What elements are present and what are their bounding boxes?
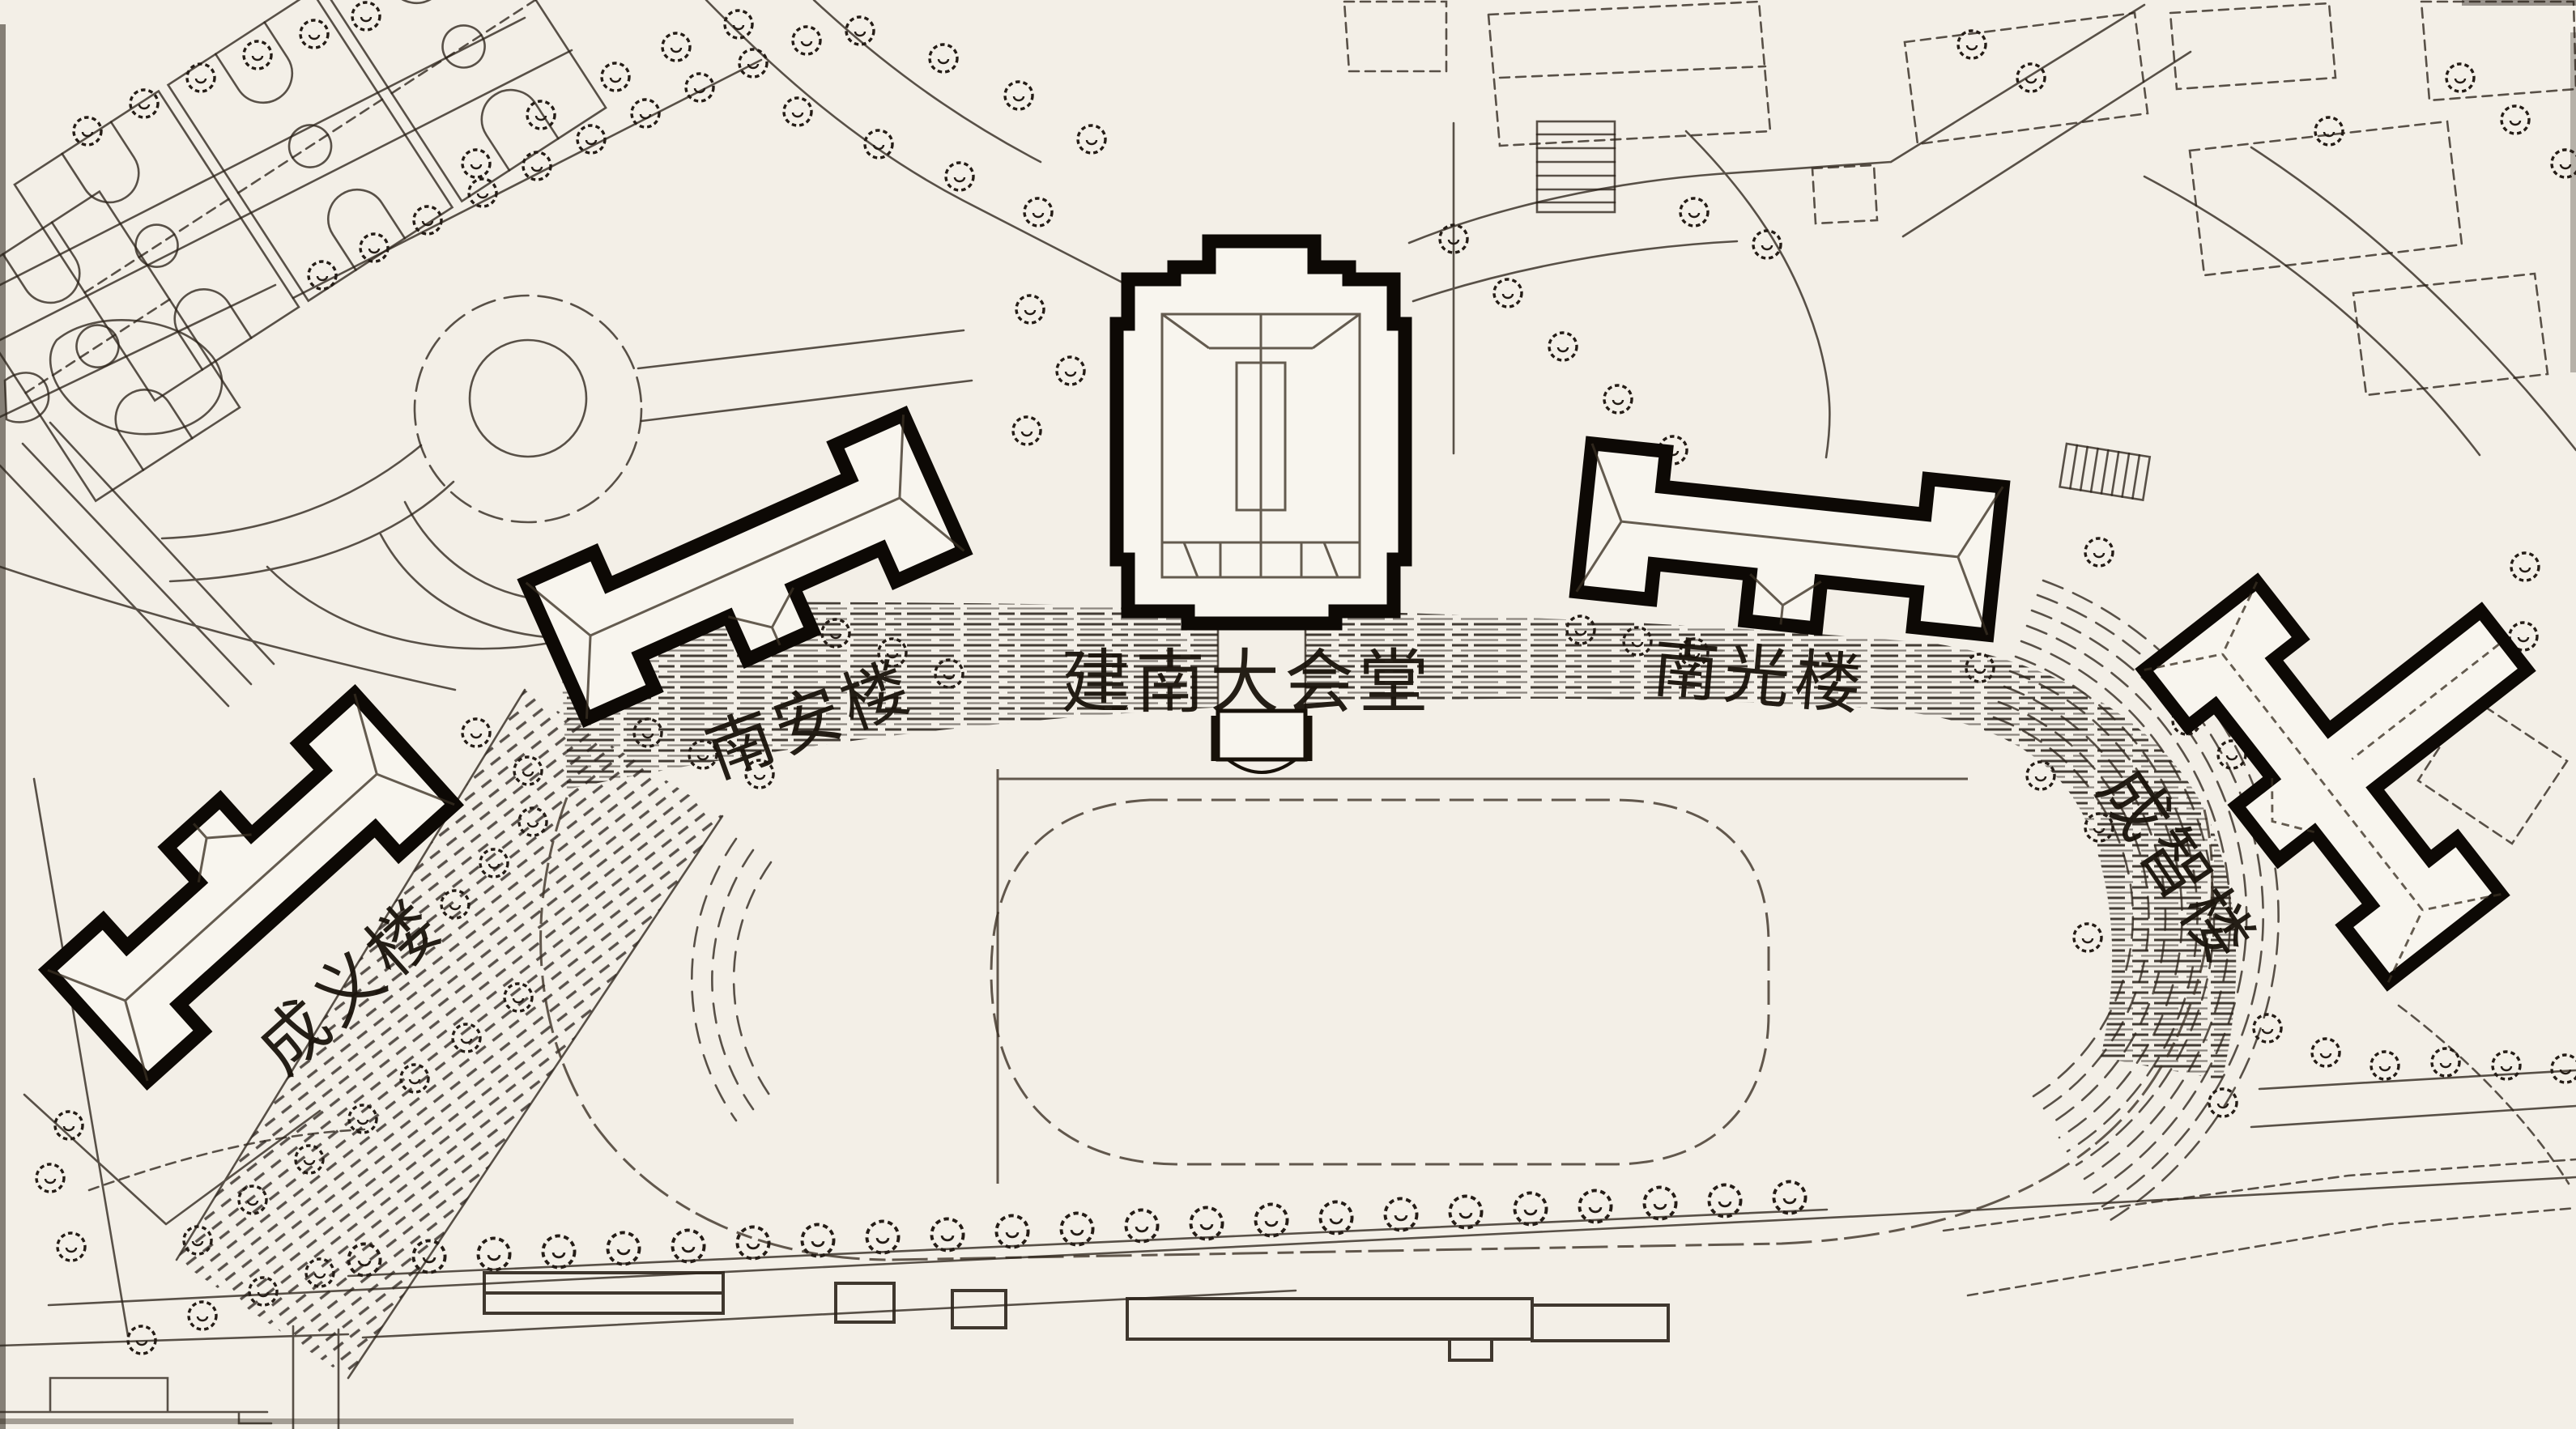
campus-site-plan: 建南大会堂 南安楼 南光楼 成义楼 成智楼: [0, 0, 2576, 1429]
label-auditorium: 建南大会堂: [1061, 642, 1433, 723]
site-plan-canvas: 建南大会堂 南安楼 南光楼 成义楼 成智楼: [0, 0, 2576, 1429]
building-auditorium: [1117, 241, 1405, 623]
